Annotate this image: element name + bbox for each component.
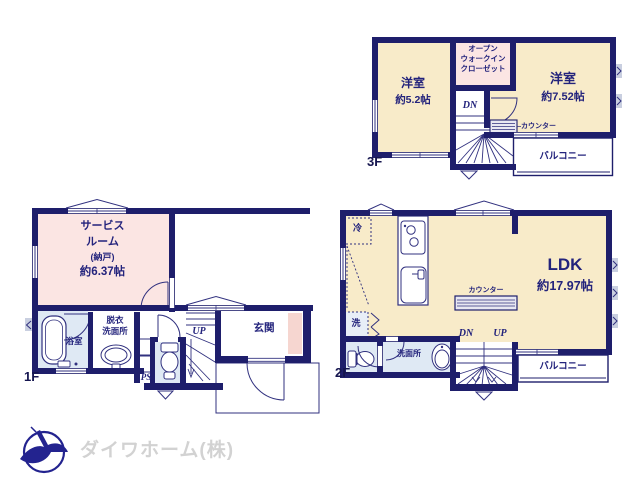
counter-3f-icon	[490, 120, 521, 133]
label-3f-owic-line2: ウォークイン	[452, 55, 514, 63]
label-2f-counter: カウンター	[455, 287, 517, 294]
label-2f-washroom: 洗面所	[386, 350, 432, 358]
kitchen-icon	[398, 216, 428, 305]
room-3f-bedroom-7-52	[513, 40, 610, 132]
eave-mark-1f-entry	[186, 297, 246, 306]
label-floor-2f: 2F	[335, 366, 350, 379]
label-3f-stairs-dn: DN	[455, 101, 485, 111]
label-2f-ldk-size: 約17.97帖	[518, 280, 612, 293]
label-floor-1f: 1F	[24, 370, 39, 383]
label-1f-stairs-up: UP	[184, 327, 214, 337]
floorplan-canvas: 洋室 約5.2帖 オープン ウォークイン クローゼット 洋室 約7.52帖 DN…	[0, 0, 640, 480]
label-2f-stairs-dn: DN	[452, 329, 480, 339]
eave-mark-2f-small	[368, 204, 394, 210]
entrance-door-arc	[247, 363, 284, 400]
label-1f-entrance: 玄関	[242, 323, 286, 334]
label-3f-bedroom1-size: 約5.2帖	[375, 95, 451, 106]
stair-under-mark-2f	[476, 392, 492, 400]
label-1f-service-line4: 約6.37帖	[45, 267, 160, 279]
company-name: ダイワホーム(株)	[80, 441, 234, 460]
counter-2f-icon	[455, 296, 517, 310]
label-3f-bedroom2-name: 洋室	[516, 72, 610, 85]
label-3f-bedroom2-size: 約7.52帖	[516, 92, 610, 103]
label-1f-dressing-line2: 洗面所	[92, 327, 138, 336]
toilet-1f-icon	[161, 343, 178, 379]
washbasin-2f-icon	[432, 344, 452, 370]
crane-bird-icon	[20, 430, 68, 463]
label-1f-service-line3: (納戸)	[45, 253, 160, 262]
label-3f-counter: カウンター	[521, 123, 559, 130]
eave-mark-2f	[454, 201, 514, 210]
washbasin-1f-icon	[101, 345, 131, 370]
label-1f-dressing-line1: 脱衣	[92, 316, 138, 325]
entrance-porch	[216, 363, 319, 413]
label-3f-owic-line1: オープン	[452, 45, 514, 53]
label-3f-owic-line3: クローゼット	[452, 65, 514, 73]
label-1f-service-line1: サービス	[45, 221, 160, 232]
label-2f-balcony: バルコニー	[518, 362, 608, 372]
label-2f-stairs-up: UP	[486, 329, 514, 339]
label-3f-balcony: バルコニー	[514, 152, 612, 162]
label-1f-ps: PS	[134, 373, 158, 382]
label-2f-washer: 洗	[342, 319, 370, 328]
label-1f-service-line2: ルーム	[45, 237, 160, 248]
label-2f-ldk-name: LDK	[525, 256, 605, 273]
label-floor-3f: 3F	[367, 155, 382, 168]
eave-mark-1f	[66, 200, 128, 209]
label-1f-bath: 浴室	[56, 337, 92, 346]
entrance-step	[288, 313, 302, 354]
stair-under-mark-1f	[158, 391, 173, 399]
label-2f-fridge: 冷	[343, 224, 372, 233]
label-3f-bedroom1-name: 洋室	[375, 77, 451, 89]
stair-under-mark-3f	[461, 171, 477, 179]
daiwa-home-logo	[20, 427, 68, 472]
stairs-1f-icon	[186, 313, 215, 381]
